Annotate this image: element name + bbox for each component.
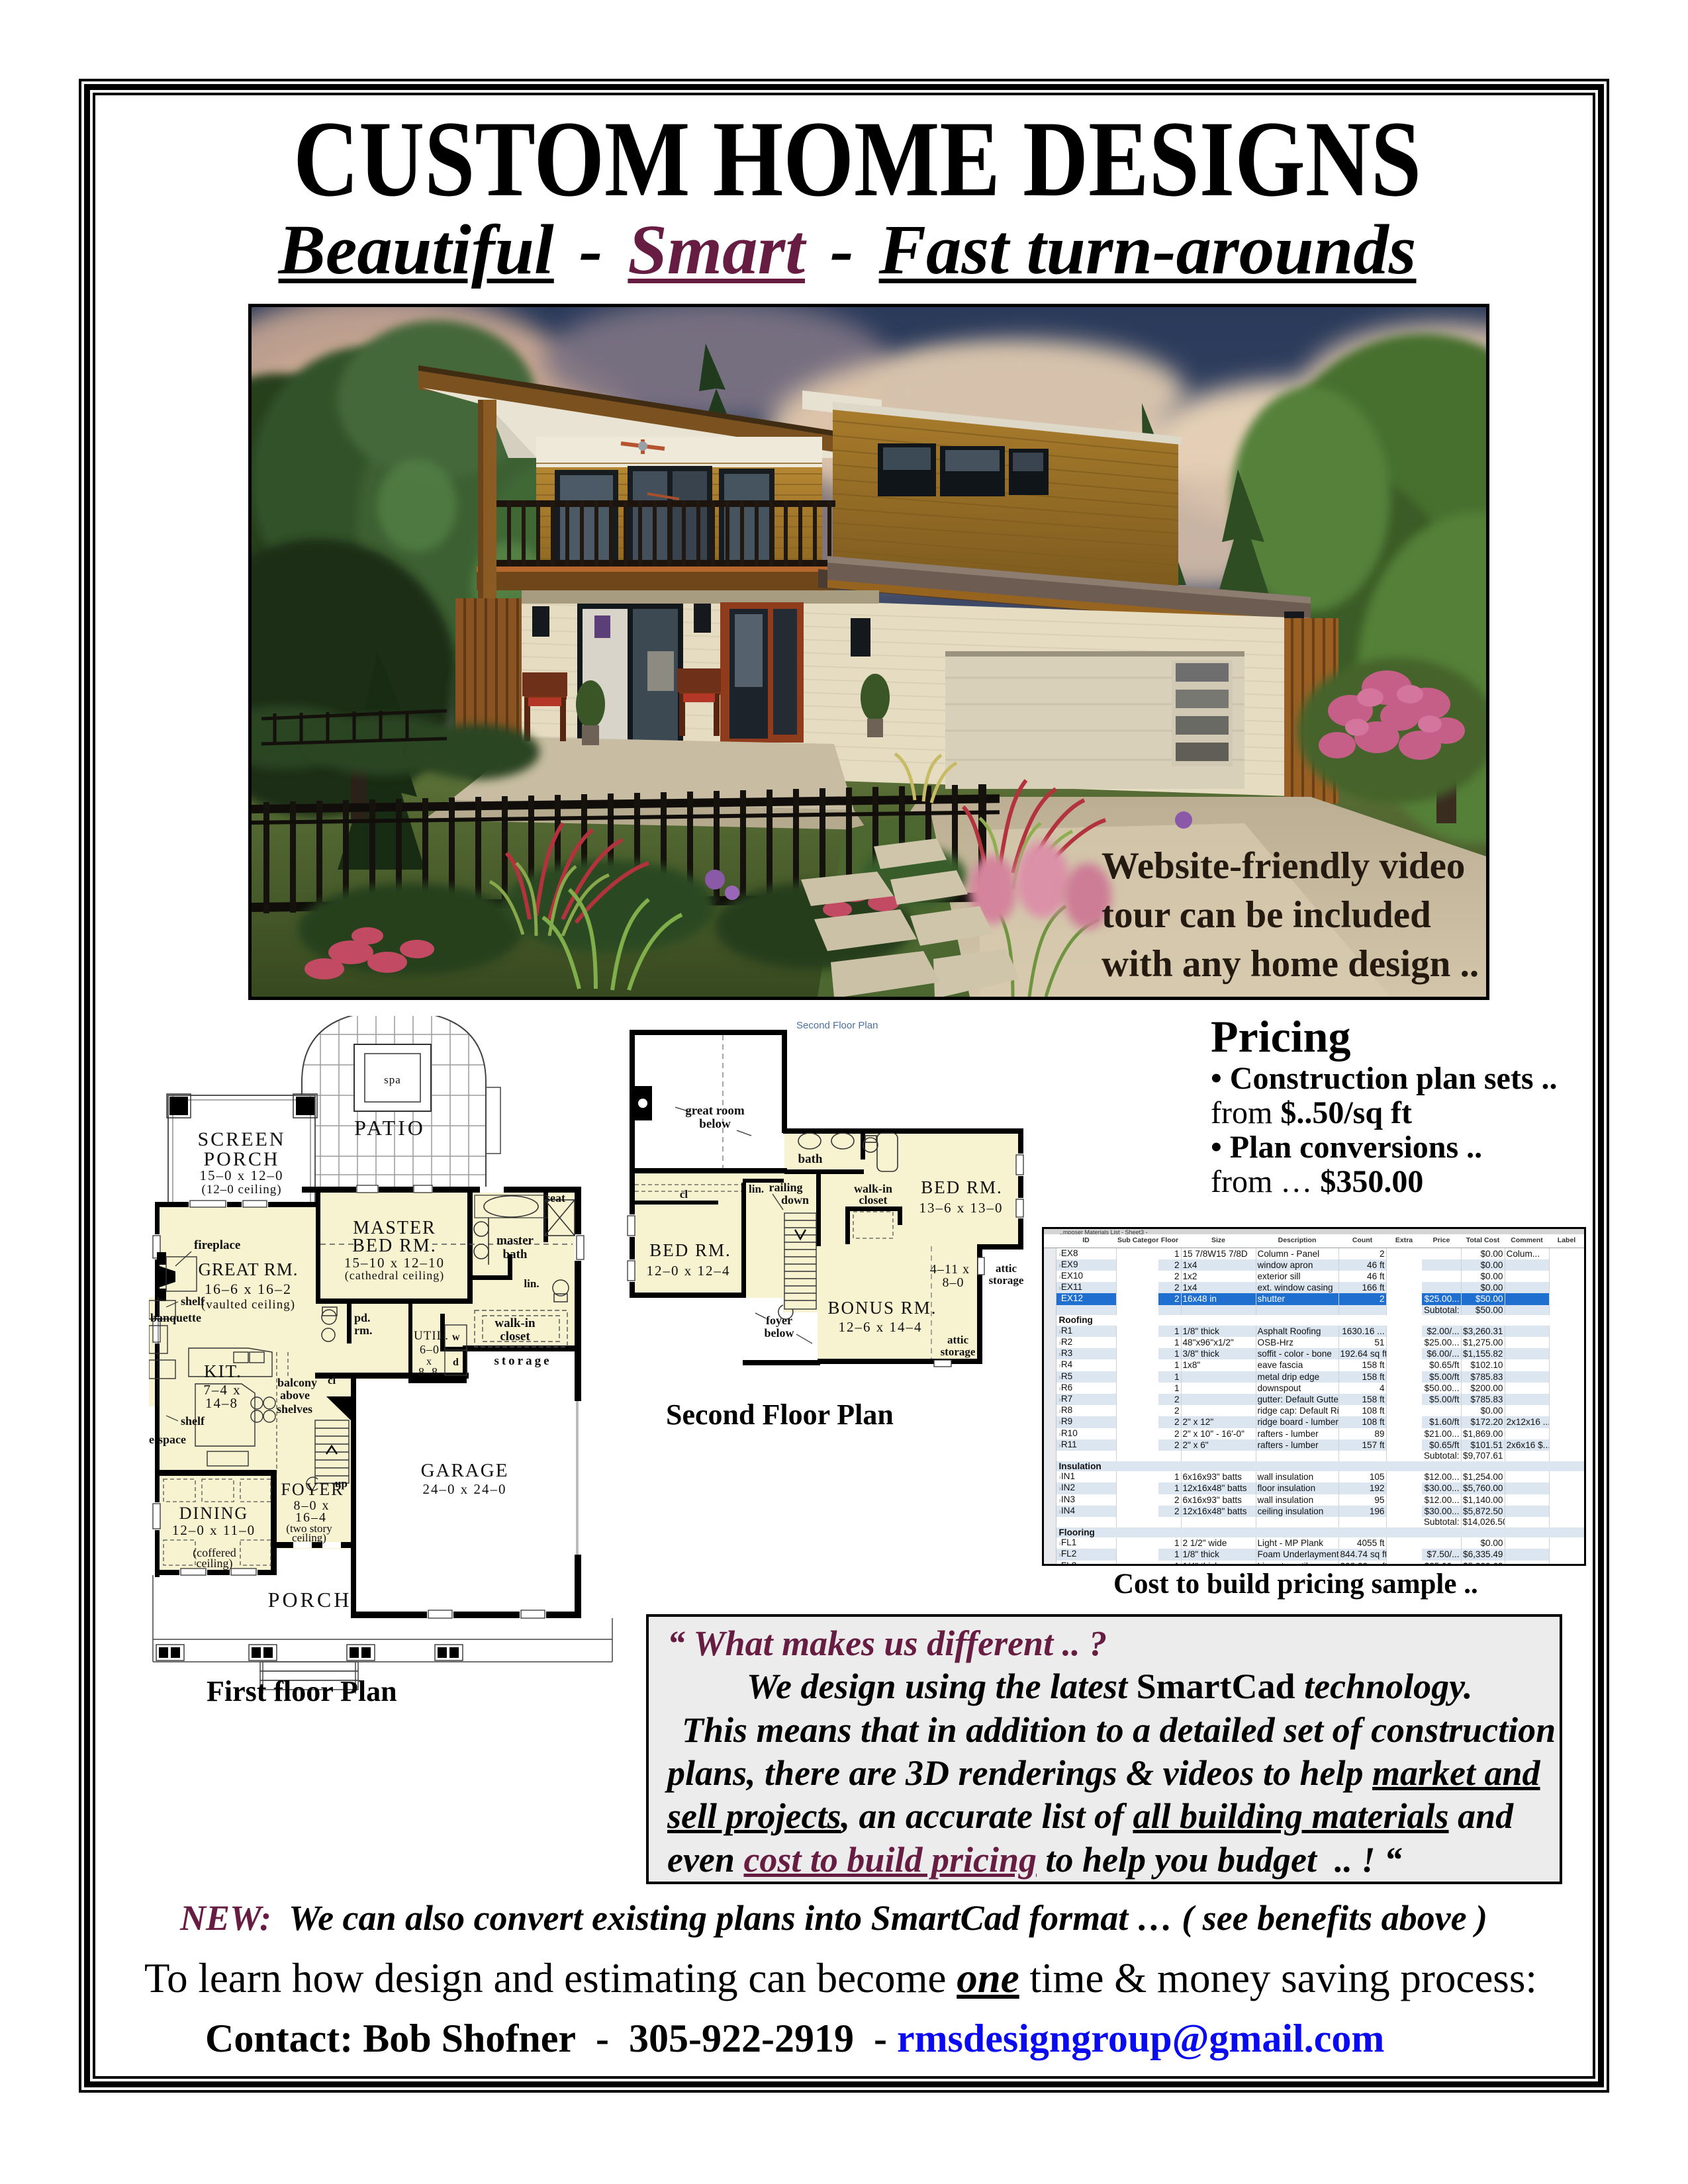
svg-text:lin.: lin. [524,1277,539,1290]
svg-text:banquette: banquette [150,1311,201,1324]
svg-text:4–11 x: 4–11 x [930,1262,970,1277]
svg-text:bath: bath [503,1248,528,1261]
svg-text:rm.: rm. [354,1324,372,1337]
svg-text:storage: storage [494,1354,551,1368]
svg-text:foyer: foyer [766,1314,792,1327]
svg-text:12–0 x 11–0: 12–0 x 11–0 [172,1522,256,1538]
svg-text:bath: bath [798,1152,823,1166]
svg-text:storage: storage [989,1274,1024,1287]
svg-text:below: below [699,1117,731,1131]
svg-text:GREAT RM.: GREAT RM. [198,1259,298,1279]
svg-text:fireplace: fireplace [194,1238,240,1252]
svg-text:shelves: shelves [277,1402,312,1416]
svg-text:FOYER: FOYER [281,1480,344,1499]
svg-text:15–0 x 12–0: 15–0 x 12–0 [200,1167,284,1183]
svg-text:great room: great room [685,1104,745,1118]
svg-text:attic: attic [996,1262,1017,1275]
svg-text:ceiling): ceiling) [292,1531,326,1544]
svg-text:GARAGE: GARAGE [421,1460,509,1481]
svg-text:spa: spa [384,1073,401,1086]
svg-text:12–6 x 14–4: 12–6 x 14–4 [839,1319,923,1335]
svg-text:BED RM.: BED RM. [921,1177,1003,1197]
svg-text:BED RM.: BED RM. [649,1240,731,1260]
svg-text:above: above [280,1388,310,1402]
svg-text:d: d [453,1357,459,1368]
svg-text:Second Floor Plan: Second Floor Plan [796,1020,878,1031]
svg-text:(cathedral ceiling): (cathedral ceiling) [345,1269,444,1283]
svg-text:closet: closet [500,1330,530,1343]
svg-text:13–6 x 13–0: 13–6 x 13–0 [919,1200,1004,1216]
svg-text:DINING: DINING [179,1504,248,1523]
svg-text:lin.: lin. [749,1183,764,1195]
svg-text:cl: cl [680,1188,688,1201]
svg-text:shelf: shelf [181,1295,205,1308]
svg-text:PATIO: PATIO [354,1116,426,1140]
svg-text:railing: railing [769,1181,802,1194]
svg-text:pd.: pd. [354,1311,371,1324]
svg-text:(vaulted ceiling): (vaulted ceiling) [201,1298,295,1312]
svg-text:below: below [765,1326,794,1340]
svg-text:balcony: balcony [277,1376,317,1389]
svg-text:ceiling): ceiling) [197,1557,233,1570]
svg-text:storage: storage [941,1345,976,1358]
svg-text:shelf: shelf [181,1414,205,1428]
svg-text:(12–0 ceiling): (12–0 ceiling) [201,1183,281,1197]
svg-text:KIT.: KIT. [204,1361,242,1381]
svg-text:24–0 x 24–0: 24–0 x 24–0 [423,1481,507,1497]
svg-text:e-space: e-space [149,1433,186,1446]
svg-text:SCREEN: SCREEN [197,1128,285,1150]
svg-text:w: w [452,1332,460,1343]
svg-text:closet: closet [859,1193,888,1206]
svg-text:seat: seat [545,1191,565,1205]
svg-text:master: master [496,1234,534,1248]
svg-text:16–6 x 16–2: 16–6 x 16–2 [205,1281,292,1297]
svg-text:walk-in: walk-in [494,1316,536,1330]
svg-text:12–0 x 12–4: 12–0 x 12–4 [647,1263,731,1279]
svg-text:8–8: 8–8 [418,1365,438,1379]
svg-text:PORCH: PORCH [268,1588,352,1612]
svg-text:UTIL.: UTIL. [414,1329,449,1343]
svg-text:BED RM.: BED RM. [352,1236,437,1256]
svg-text:6–0: 6–0 [420,1343,440,1356]
svg-text:cl: cl [328,1374,336,1387]
svg-text:14–8: 14–8 [205,1395,238,1411]
svg-text:BONUS RM.: BONUS RM. [827,1298,937,1318]
svg-text:down: down [781,1193,809,1206]
svg-text:attic: attic [947,1334,969,1346]
svg-text:8–0: 8–0 [943,1275,964,1290]
